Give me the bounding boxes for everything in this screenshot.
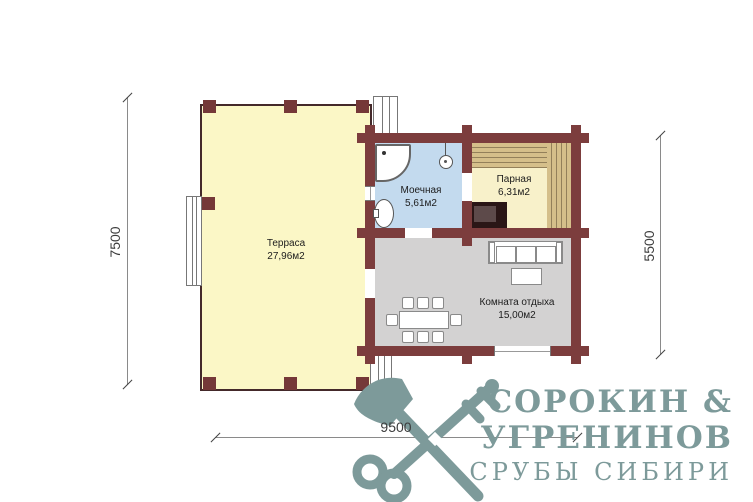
washroom-label: Моечная 5,61м2 (376, 184, 466, 210)
terrace-name: Терраса (236, 237, 336, 250)
dim-line-left (127, 97, 128, 385)
wall-left (365, 133, 375, 356)
coffee-table-icon (511, 268, 542, 285)
dining-table-icon (399, 311, 449, 329)
chair-icon (432, 331, 444, 343)
sauna-stove-icon (466, 202, 507, 228)
top-steps (373, 96, 398, 134)
terrace-post (203, 377, 216, 390)
stove-door (474, 206, 496, 222)
dim-line-right (660, 135, 661, 355)
chair-icon (432, 297, 444, 309)
terrace-post (356, 100, 369, 113)
wall-top (365, 133, 581, 143)
steam-name: Парная (469, 173, 559, 186)
steam-area: 6,31м2 (469, 186, 559, 199)
sofa-icon (488, 241, 563, 264)
dim-left-value: 7500 (107, 214, 123, 270)
terrace-area: 27,96м2 (236, 250, 336, 263)
dim-right-value: 5500 (641, 218, 657, 274)
drain-icon (382, 151, 386, 155)
dim-bottom-value: 9500 (368, 419, 424, 435)
chair-icon (402, 297, 414, 309)
floor-plan: Терраса 27,96м2 Моечная 5,61м2 Парная 6,… (0, 0, 753, 502)
washroom-lounge-door (405, 228, 432, 238)
wall-interior-horizontal (365, 228, 581, 238)
sink-tap-icon (373, 209, 379, 218)
wall-right (571, 133, 581, 356)
washroom-window (365, 186, 375, 201)
lounge-terrace-door (365, 269, 375, 298)
terrace-post (284, 100, 297, 113)
washroom-name: Моечная (376, 184, 466, 197)
lounge-label: Комната отдыха 15,00м2 (457, 296, 577, 322)
shower-head-icon (439, 155, 453, 169)
washroom-area: 5,61м2 (376, 197, 466, 210)
lounge-window (494, 346, 551, 356)
terrace-post (284, 377, 297, 390)
lounge-name: Комната отдыха (457, 296, 577, 309)
axe-and-key-logo-icon (350, 372, 525, 502)
steam-label: Парная 6,31м2 (469, 173, 559, 199)
chair-icon (417, 331, 429, 343)
lounge-area: 15,00м2 (457, 309, 577, 322)
terrace-label: Терраса 27,96м2 (236, 237, 336, 263)
terrace-post (203, 100, 216, 113)
terrace-entry-steps (186, 196, 202, 286)
chair-icon (402, 331, 414, 343)
terrace-post (202, 197, 215, 210)
chair-icon (417, 297, 429, 309)
chair-icon (386, 314, 398, 326)
